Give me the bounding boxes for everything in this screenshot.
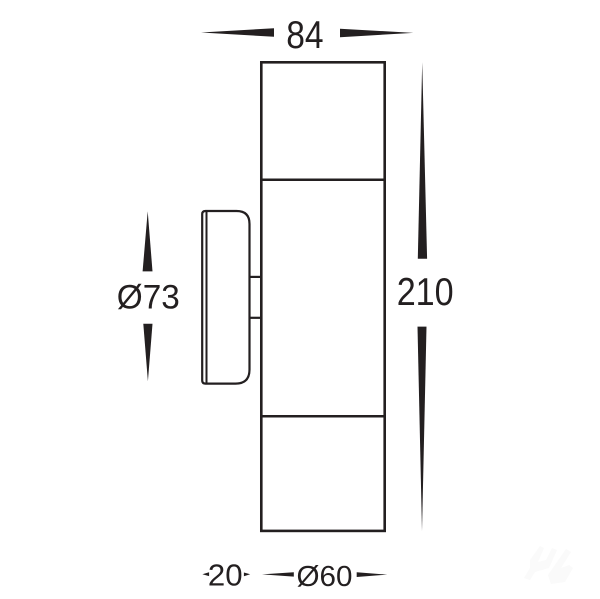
svg-text:210: 210 xyxy=(397,271,454,314)
svg-text:Ø60: Ø60 xyxy=(297,561,353,593)
svg-text:Ø73: Ø73 xyxy=(117,279,180,317)
svg-text:84: 84 xyxy=(286,14,323,57)
svg-text:20: 20 xyxy=(208,558,243,592)
